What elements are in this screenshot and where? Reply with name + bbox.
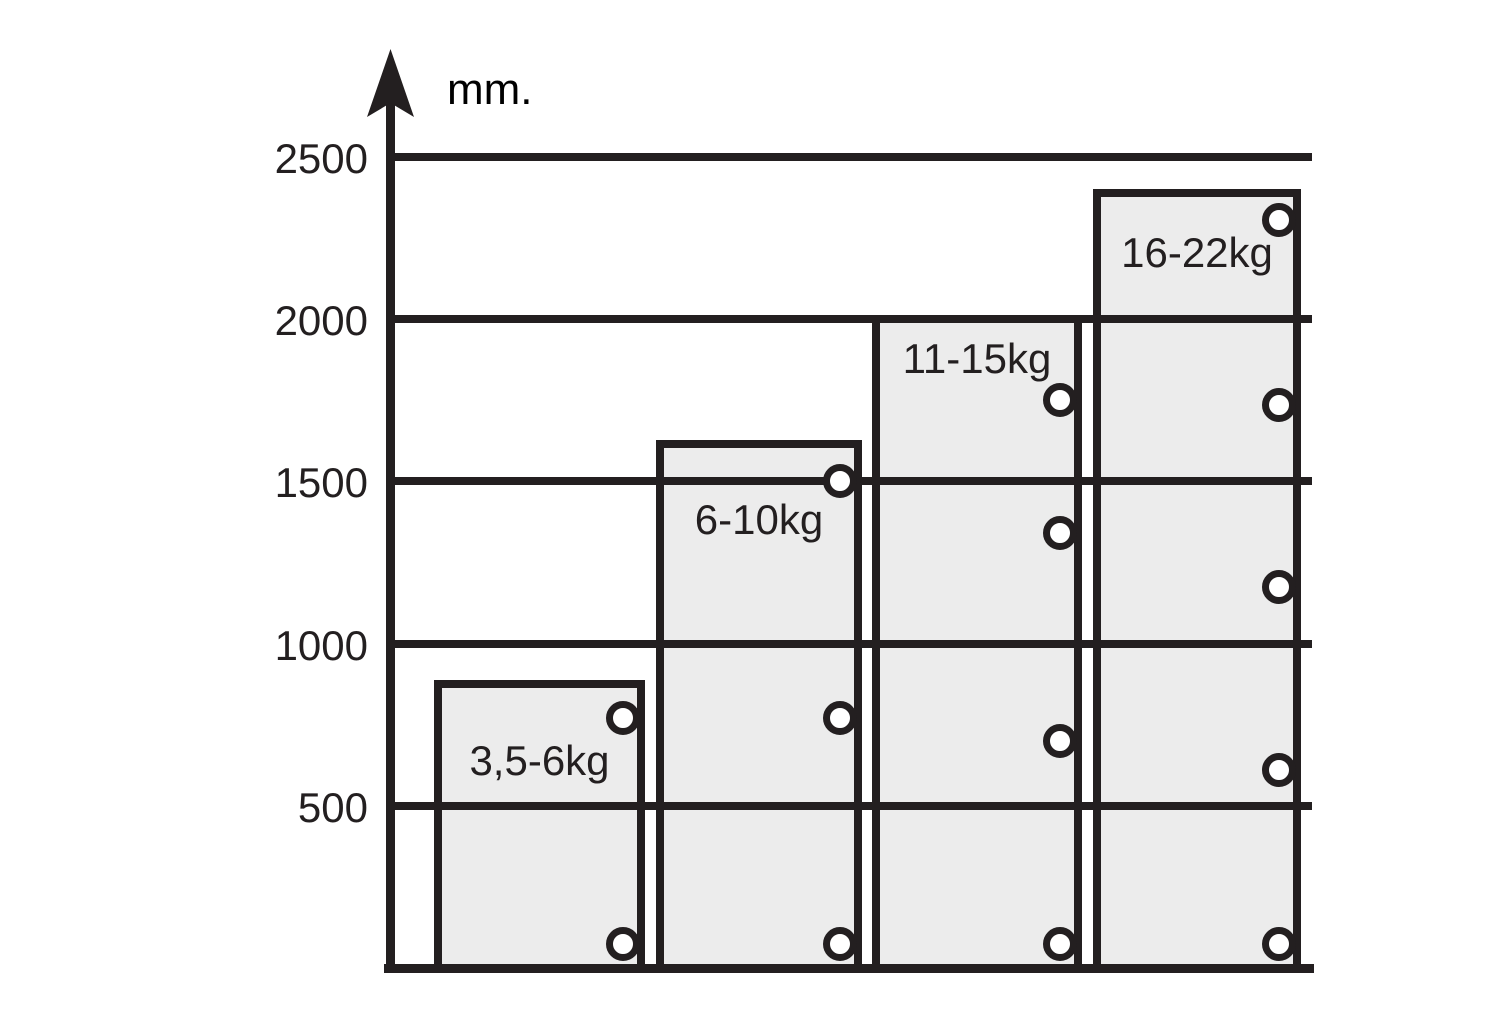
bar-label-6-10kg: 6-10kg xyxy=(650,496,868,544)
axis-unit-label: mm. xyxy=(447,66,533,114)
mounting-hole-marker xyxy=(823,927,857,961)
gridline-1000 xyxy=(390,640,1312,648)
mounting-hole-marker xyxy=(823,701,857,735)
y-axis-line xyxy=(386,72,395,972)
gridline-2500 xyxy=(390,153,1312,161)
tick-label-1500: 1500 xyxy=(158,457,368,509)
bar-label-11-15kg: 11-15kg xyxy=(866,335,1088,383)
weight-height-chart: mm. 25002000150010005003,5-6kg6-10kg11-1… xyxy=(40,16,1500,1016)
bar-label-3-5-6kg: 3,5-6kg xyxy=(428,737,651,785)
tick-label-2500: 2500 xyxy=(158,133,368,185)
tick-label-1000: 1000 xyxy=(158,620,368,672)
mounting-hole-marker xyxy=(1262,203,1296,237)
mounting-hole-marker xyxy=(1262,570,1296,604)
gridline-2000 xyxy=(390,315,1312,323)
mounting-hole-marker xyxy=(1262,927,1296,961)
gridline-500 xyxy=(390,802,1312,810)
tick-label-2000: 2000 xyxy=(158,295,368,347)
mounting-hole-marker xyxy=(606,927,640,961)
y-axis-arrow-icon xyxy=(367,49,414,119)
mounting-hole-marker xyxy=(1262,388,1296,422)
x-axis-baseline xyxy=(384,964,1314,973)
mounting-hole-marker xyxy=(1043,724,1077,758)
tick-label-500: 500 xyxy=(158,782,368,834)
mounting-hole-marker xyxy=(1043,927,1077,961)
mounting-hole-marker xyxy=(1262,753,1296,787)
mounting-hole-marker xyxy=(606,701,640,735)
